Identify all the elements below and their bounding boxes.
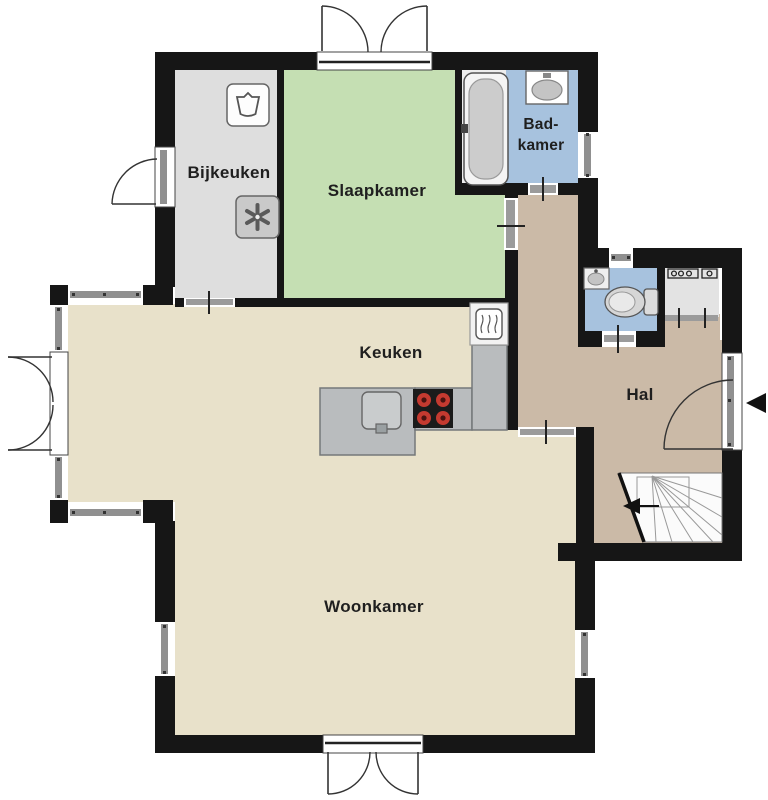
label-hal: Hal: [626, 385, 653, 404]
room-woonkamer-east: [505, 430, 578, 738]
window-toilet: [609, 248, 633, 268]
window-woonkamer-west: [155, 622, 175, 676]
label-badkamer-line2: kamer: [518, 137, 565, 154]
french-doors-south: [323, 735, 423, 794]
stove-icon: [413, 389, 453, 428]
label-badkamer-line1: Bad-: [523, 116, 558, 133]
label-bijkeuken: Bijkeuken: [187, 163, 270, 182]
window-bay-west-upper: [50, 305, 68, 352]
room-woonkamer-bay: [66, 304, 176, 502]
kitchen-sink-icon: [362, 392, 401, 433]
wash-basin-icon: [526, 71, 568, 104]
label-woonkamer: Woonkamer: [324, 597, 424, 616]
label-keuken: Keuken: [359, 343, 422, 362]
bathtub-icon: [461, 73, 508, 185]
door-bijkeuken-exterior: [112, 147, 175, 207]
ventilation-fan-icon: [236, 196, 279, 238]
french-doors-bay-west: [8, 352, 68, 455]
floorplan: Bijkeuken Slaapkamer Bad- kamer Keuken H…: [0, 0, 768, 800]
french-doors-north: [317, 6, 432, 70]
room-woonkamer-keuken: [175, 306, 507, 738]
window-woonkamer-east: [575, 630, 595, 678]
dishwasher-icon: [470, 303, 508, 345]
window-bay-south: [68, 503, 143, 523]
floorplan-drawing: Bijkeuken Slaapkamer Bad- kamer Keuken H…: [0, 0, 768, 800]
window-bay-north: [68, 285, 143, 305]
window-badkamer: [578, 132, 598, 178]
corner-sink-icon: [584, 268, 609, 289]
room-hal-corridor: [514, 186, 578, 436]
entrance-arrow-icon: [746, 393, 766, 413]
washing-machine-icon: [227, 84, 269, 126]
label-slaapkamer: Slaapkamer: [328, 181, 427, 200]
window-bay-west-lower: [50, 455, 68, 500]
toilet-icon: [605, 287, 658, 317]
